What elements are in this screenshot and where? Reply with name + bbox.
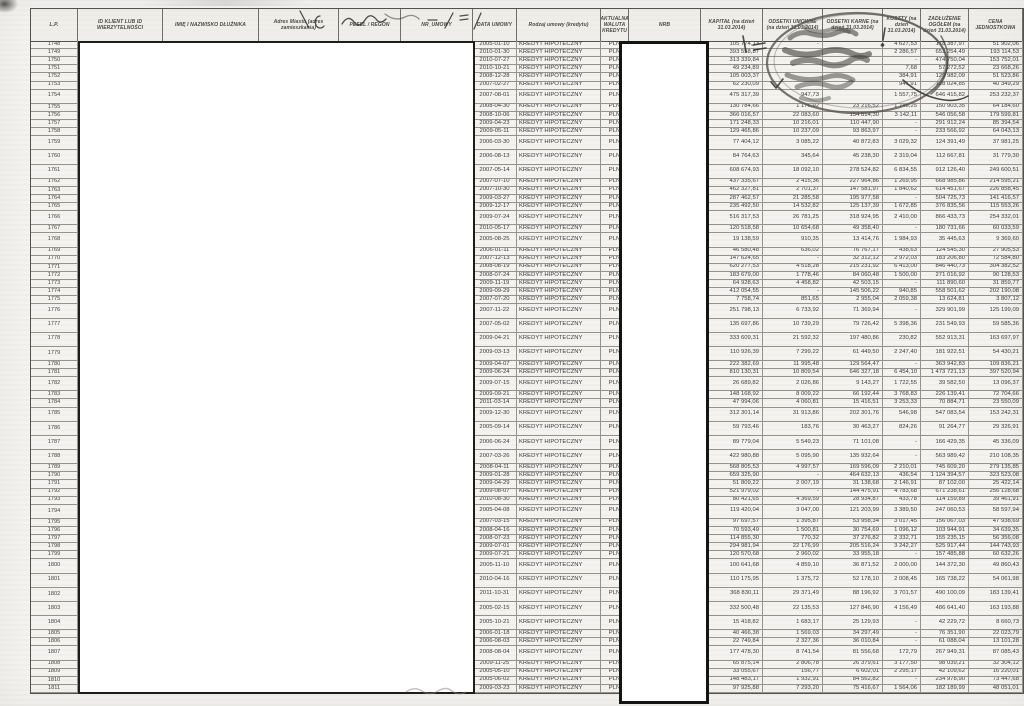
- cell-koszty: 546,98: [883, 408, 921, 421]
- cell-zadluzenie_ogolem: 653 254,49: [921, 49, 969, 56]
- cell-odsetki_umowne: 11 995,48: [763, 361, 823, 368]
- cell-lp: 1795: [31, 519, 78, 526]
- cell-cena_jednostkowa: 60 632,26: [969, 551, 1023, 558]
- cell-data_umowy: 2006-06-24: [473, 436, 517, 449]
- column-header-nr-umowy: NR_UMOWY: [401, 9, 473, 41]
- cell-zadluzenie_ogolem: 490 100,09: [921, 588, 969, 601]
- cell-koszty: 230,82: [883, 333, 921, 346]
- cell-data_umowy: 2005-11-10: [473, 559, 517, 572]
- cell-lp: 1772: [31, 272, 78, 279]
- cell-odsetki_umowne: 4 458,82: [763, 280, 823, 287]
- cell-zadluzenie_ogolem: 291 912,24: [921, 120, 969, 127]
- cell-zadluzenie_ogolem: 271 016,92: [921, 272, 969, 279]
- cell-koszty: 6 454,10: [883, 369, 921, 376]
- cell-lp: 1758: [31, 128, 78, 135]
- cell-koszty: -: [883, 195, 921, 202]
- cell-kapital: 659 325,90: [701, 472, 763, 479]
- cell-zadluzenie_ogolem: 912 126,40: [921, 165, 969, 178]
- cell-odsetki_umowne: 4 060,81: [763, 399, 823, 406]
- cell-cena_jednostkowa: 144 743,93: [969, 543, 1023, 550]
- cell-cena_jednostkowa: 90 128,53: [969, 272, 1023, 279]
- cell-odsetki_umowne: 10 216,01: [763, 120, 823, 127]
- cell-kapital: 33 055,67: [701, 669, 763, 676]
- cell-lp: 1765: [31, 203, 78, 210]
- cell-koszty: 3 029,32: [883, 136, 921, 149]
- cell-odsetki_karne: 129 564,47: [823, 361, 883, 368]
- cell-odsetki_umowne: 21 592,32: [763, 333, 823, 346]
- cell-odsetki_umowne: 3 047,00: [763, 505, 823, 518]
- cell-lp: 1802: [31, 588, 78, 601]
- column-header-adres: Adres Miasto (adres zamieszkania): [259, 9, 339, 41]
- cell-zadluzenie_ogolem: 111 890,60: [921, 280, 969, 287]
- cell-odsetki_umowne: -: [763, 288, 823, 295]
- cell-odsetki_umowne: 10 237,09: [763, 128, 823, 135]
- cell-zadluzenie_ogolem: 91 264,77: [921, 422, 969, 435]
- cell-rodzaj_umowy: KREDYT HIPOTECZNY: [517, 497, 601, 504]
- cell-odsetki_karne: [823, 90, 883, 103]
- redaction-box-identity: [78, 41, 475, 694]
- cell-cena_jednostkowa: 54 061,98: [969, 574, 1023, 587]
- cell-data_umowy: 2009-03-27: [473, 195, 517, 202]
- cell-lp: 1778: [31, 333, 78, 346]
- cell-odsetki_karne: 205 516,24: [823, 543, 883, 550]
- cell-cena_jednostkowa: 397 520,94: [969, 369, 1023, 376]
- cell-kapital: 620 277,53: [701, 264, 763, 271]
- cell-rodzaj_umowy: KREDYT HIPOTECZNY: [517, 65, 601, 72]
- cell-data_umowy: 2005-04-08: [473, 505, 517, 518]
- cell-koszty: 3 177,50: [883, 661, 921, 668]
- cell-kapital: 171 248,33: [701, 120, 763, 127]
- cell-rodzaj_umowy: KREDYT HIPOTECZNY: [517, 179, 601, 186]
- cell-lp: 1760: [31, 150, 78, 163]
- cell-koszty: 6 834,55: [883, 165, 921, 178]
- cell-cena_jednostkowa: 179 599,81: [969, 112, 1023, 119]
- cell-lp: 1779: [31, 347, 78, 360]
- cell-data_umowy: 2009-07-01: [473, 543, 517, 550]
- cell-rodzaj_umowy: KREDYT HIPOTECZNY: [517, 280, 601, 287]
- cell-lp: 1806: [31, 638, 78, 645]
- cell-lp: 1785: [31, 408, 78, 421]
- cell-zadluzenie_ogolem: 39 582,50: [921, 377, 969, 390]
- cell-kapital: 313 339,84: [701, 57, 763, 64]
- cell-odsetki_karne: 53 958,34: [823, 519, 883, 526]
- cell-zadluzenie_ogolem: 181 922,51: [921, 347, 969, 360]
- cell-koszty: -: [883, 436, 921, 449]
- cell-zadluzenie_ogolem: 267 949,31: [921, 646, 969, 659]
- cell-koszty: -: [883, 128, 921, 135]
- cell-rodzaj_umowy: KREDYT HIPOTECZNY: [517, 527, 601, 534]
- cell-odsetki_karne: 30 754,69: [823, 527, 883, 534]
- cell-odsetki_umowne: 910,35: [763, 233, 823, 246]
- cell-zadluzenie_ogolem: 124 545,30: [921, 248, 969, 255]
- cell-zadluzenie_ogolem: 144 372,30: [921, 559, 969, 572]
- cell-lp: 1769: [31, 248, 78, 255]
- cell-data_umowy: 2009-03-13: [473, 347, 517, 360]
- cell-kapital: 412 054,55: [701, 288, 763, 295]
- cell-rodzaj_umowy: KREDYT HIPOTECZNY: [517, 472, 601, 479]
- cell-zadluzenie_ogolem: 1 124 394,57: [921, 472, 969, 479]
- cell-koszty: 1 500,00: [883, 272, 921, 279]
- cell-kapital: 120 518,58: [701, 225, 763, 232]
- cell-odsetki_karne: 215 231,92: [823, 264, 883, 271]
- cell-koszty: -: [883, 280, 921, 287]
- cell-koszty: 4 627,53: [883, 41, 921, 48]
- cell-rodzaj_umowy: KREDYT HIPOTECZNY: [517, 150, 601, 163]
- cell-odsetki_karne: 93 863,97: [823, 128, 883, 135]
- cell-odsetki_umowne: 1 778,46: [763, 272, 823, 279]
- cell-rodzaj_umowy: KREDYT HIPOTECZNY: [517, 304, 601, 317]
- cell-lp: 1750: [31, 57, 78, 64]
- cell-odsetki_karne: 81 556,68: [823, 646, 883, 659]
- cell-rodzaj_umowy: KREDYT HIPOTECZNY: [517, 288, 601, 295]
- column-header-imie-nazwisko: IMIĘ I NAZWISKO DŁUŻNIKA: [163, 9, 259, 41]
- cell-odsetki_umowne: 1 932,91: [763, 677, 823, 684]
- cell-odsetki_karne: 61 449,50: [823, 347, 883, 360]
- cell-zadluzenie_ogolem: 866 433,73: [921, 211, 969, 224]
- cell-kapital: 110 175,95: [701, 574, 763, 587]
- cell-koszty: 1 672,85: [883, 203, 921, 210]
- cell-odsetki_umowne: [763, 65, 823, 72]
- cell-odsetki_umowne: 14 532,82: [763, 203, 823, 210]
- cell-kapital: 608 674,93: [701, 165, 763, 178]
- cell-zadluzenie_ogolem: 129 982,09: [921, 73, 969, 80]
- cell-zadluzenie_ogolem: 155 235,15: [921, 535, 969, 542]
- cell-data_umowy: 2009-11-25: [473, 661, 517, 668]
- cell-odsetki_umowne: -: [763, 472, 823, 479]
- cell-odsetki_umowne: 22 176,99: [763, 543, 823, 550]
- cell-data_umowy: 2007-11-22: [473, 304, 517, 317]
- cell-kapital: 47 994,06: [701, 399, 763, 406]
- cell-rodzaj_umowy: KREDYT HIPOTECZNY: [517, 256, 601, 263]
- cell-cena_jednostkowa: 64 184,60: [969, 104, 1023, 111]
- cell-koszty: 438,63: [883, 248, 921, 255]
- cell-zadluzenie_ogolem: 182 189,99: [921, 685, 969, 692]
- cell-rodzaj_umowy: KREDYT HIPOTECZNY: [517, 638, 601, 645]
- cell-zadluzenie_ogolem: 614 451,67: [921, 187, 969, 194]
- cell-koszty: 3 142,11: [883, 112, 921, 119]
- scan-corner-smudge: [0, 0, 18, 13]
- cell-odsetki_karne: 127 846,90: [823, 602, 883, 615]
- cell-koszty: -: [883, 616, 921, 629]
- cell-kapital: 119 420,04: [701, 505, 763, 518]
- cell-koszty: 2 247,40: [883, 347, 921, 360]
- cell-odsetki_umowne: 10 809,54: [763, 369, 823, 376]
- cell-odsetki_umowne: 7 299,22: [763, 347, 823, 360]
- cell-data_umowy: 2009-04-29: [473, 480, 517, 487]
- cell-lp: 1801: [31, 574, 78, 587]
- cell-rodzaj_umowy: KREDYT HIPOTECZNY: [517, 422, 601, 435]
- cell-odsetki_umowne: 8 741,54: [763, 646, 823, 659]
- cell-zadluzenie_ogolem: 668 985,86: [921, 179, 969, 186]
- cell-odsetki_karne: 76 767,17: [823, 248, 883, 255]
- cell-koszty: 1 840,62: [883, 187, 921, 194]
- cell-lp: 1782: [31, 377, 78, 390]
- cell-koszty: -: [883, 361, 921, 368]
- cell-odsetki_karne: [823, 41, 883, 48]
- cell-kapital: 97 697,57: [701, 519, 763, 526]
- cell-odsetki_umowne: 2 806,78: [763, 661, 823, 668]
- cell-data_umowy: 2011-03-14: [473, 399, 517, 406]
- cell-data_umowy: 2009-05-11: [473, 128, 517, 135]
- column-header-id-klient: ID KLIENT LUB ID WIERZYTELNOŚCI: [78, 9, 163, 41]
- cell-odsetki_karne: 195 977,58: [823, 195, 883, 202]
- cell-data_umowy: 2007-10-30: [473, 187, 517, 194]
- cell-cena_jednostkowa: 56 356,08: [969, 535, 1023, 542]
- cell-odsetki_umowne: 21 285,58: [763, 195, 823, 202]
- cell-odsetki_karne: 169 596,09: [823, 464, 883, 471]
- cell-kapital: 183 679,00: [701, 272, 763, 279]
- cell-lp: 1797: [31, 535, 78, 542]
- cell-data_umowy: 2008-04-16: [473, 527, 517, 534]
- cell-data_umowy: 2007-07-10: [473, 179, 517, 186]
- cell-cena_jednostkowa: 8 660,73: [969, 616, 1023, 629]
- cell-lp: 1759: [31, 136, 78, 149]
- cell-data_umowy: 2009-09-21: [473, 391, 517, 398]
- cell-rodzaj_umowy: KREDYT HIPOTECZNY: [517, 464, 601, 471]
- cell-rodzaj_umowy: KREDYT HIPOTECZNY: [517, 120, 601, 127]
- cell-rodzaj_umowy: KREDYT HIPOTECZNY: [517, 57, 601, 64]
- cell-zadluzenie_ogolem: 98 039,21: [921, 661, 969, 668]
- cell-koszty: 2 972,03: [883, 256, 921, 263]
- cell-koszty: 384,91: [883, 73, 921, 80]
- cell-kapital: 475 317,39: [701, 90, 763, 103]
- cell-cena_jednostkowa: 73 447,68: [969, 677, 1023, 684]
- cell-koszty: -: [883, 304, 921, 317]
- column-header-zadluzenie: ZADŁUŻENIE OGÓŁEM (na dzień 31.03.2014): [921, 9, 969, 41]
- cell-data_umowy: 2007-02-27: [473, 82, 517, 89]
- cell-data_umowy: 2009-04-07: [473, 361, 517, 368]
- cell-koszty: 436,54: [883, 472, 921, 479]
- cell-cena_jednostkowa: 9 369,60: [969, 233, 1023, 246]
- cell-odsetki_karne: 40 872,83: [823, 136, 883, 149]
- cell-odsetki_karne: 33 955,18: [823, 551, 883, 558]
- cell-kapital: 51 809,22: [701, 480, 763, 487]
- cell-odsetki_karne: 145 506,22: [823, 288, 883, 295]
- scanned-loan-table-page: L.P. ID KLIENT LUB ID WIERZYTELNOŚCI IMI…: [0, 0, 1024, 706]
- cell-odsetki_umowne: 10 739,29: [763, 319, 823, 332]
- cell-odsetki_umowne: 770,32: [763, 535, 823, 542]
- cell-kapital: 84 764,63: [701, 150, 763, 163]
- cell-data_umowy: 2006-08-03: [473, 638, 517, 645]
- cell-rodzaj_umowy: KREDYT HIPOTECZNY: [517, 391, 601, 398]
- cell-lp: 1780: [31, 361, 78, 368]
- cell-kapital: 147 624,65: [701, 256, 763, 263]
- cell-odsetki_karne: 71 369,94: [823, 304, 883, 317]
- cell-odsetki_umowne: 156,77: [763, 669, 823, 676]
- cell-odsetki_umowne: 183,76: [763, 422, 823, 435]
- cell-data_umowy: 2008-08-19: [473, 264, 517, 271]
- cell-zadluzenie_ogolem: 547 083,54: [921, 408, 969, 421]
- cell-data_umowy: 2010-08-30: [473, 497, 517, 504]
- cell-zadluzenie_ogolem: 846 440,73: [921, 264, 969, 271]
- cell-kapital: 222 382,69: [701, 361, 763, 368]
- cell-odsetki_karne: 135 932,64: [823, 450, 883, 463]
- cell-cena_jednostkowa: 51 902,06: [969, 41, 1023, 48]
- cell-odsetki_umowne: 26 781,25: [763, 211, 823, 224]
- cell-odsetki_karne: 32 312,12: [823, 256, 883, 263]
- cell-odsetki_umowne: 1 569,03: [763, 630, 823, 637]
- cell-rodzaj_umowy: KREDYT HIPOTECZNY: [517, 104, 601, 111]
- cell-rodzaj_umowy: KREDYT HIPOTECZNY: [517, 543, 601, 550]
- cell-data_umowy: 2010-01-30: [473, 49, 517, 56]
- cell-data_umowy: 2005-08-25: [473, 233, 517, 246]
- cell-data_umowy: 2009-07-21: [473, 551, 517, 558]
- cell-odsetki_karne: 34 297,49: [823, 630, 883, 637]
- cell-data_umowy: 2009-01-28: [473, 472, 517, 479]
- cell-kapital: 65 875,14: [701, 661, 763, 668]
- cell-kapital: 80 421,65: [701, 497, 763, 504]
- cell-lp: 1781: [31, 369, 78, 376]
- cell-koszty: 433,78: [883, 497, 921, 504]
- cell-lp: 1796: [31, 527, 78, 534]
- cell-koszty: 1 096,12: [883, 527, 921, 534]
- cell-odsetki_umowne: 8 009,22: [763, 391, 823, 398]
- cell-cena_jednostkowa: 40 349,29: [969, 82, 1023, 89]
- cell-kapital: 129 465,86: [701, 128, 763, 135]
- cell-koszty: 3 017,45: [883, 519, 921, 526]
- cell-zadluzenie_ogolem: 234 978,90: [921, 677, 969, 684]
- cell-cena_jednostkowa: 163 193,88: [969, 602, 1023, 615]
- cell-koszty: 824,26: [883, 422, 921, 435]
- cell-kapital: 521 979,02: [701, 489, 763, 496]
- cell-rodzaj_umowy: KREDYT HIPOTECZNY: [517, 211, 601, 224]
- cell-rodzaj_umowy: KREDYT HIPOTECZNY: [517, 661, 601, 668]
- cell-zadluzenie_ogolem: 61 088,04: [921, 638, 969, 645]
- cell-kapital: 89 779,04: [701, 436, 763, 449]
- cell-kapital: 105 774,13: [701, 41, 763, 48]
- cell-kapital: 568 805,53: [701, 464, 763, 471]
- cell-rodzaj_umowy: KREDYT HIPOTECZNY: [517, 233, 601, 246]
- cell-rodzaj_umowy: KREDYT HIPOTECZNY: [517, 90, 601, 103]
- cell-zadluzenie_ogolem: 183 206,80: [921, 256, 969, 263]
- cell-data_umowy: 2009-04-21: [473, 333, 517, 346]
- column-header-lp: L.P.: [31, 9, 78, 41]
- cell-zadluzenie_ogolem: 76 351,90: [921, 630, 969, 637]
- cell-odsetki_umowne: 1 375,72: [763, 574, 823, 587]
- redaction-box-nrb: [619, 41, 709, 704]
- cell-zadluzenie_ogolem: 150 903,35: [921, 104, 969, 111]
- cell-rodzaj_umowy: KREDYT HIPOTECZNY: [517, 296, 601, 303]
- cell-odsetki_umowne: [763, 49, 823, 56]
- cell-zadluzenie_ogolem: 103 944,91: [921, 527, 969, 534]
- cell-cena_jednostkowa: 31 779,30: [969, 150, 1023, 163]
- cell-zadluzenie_ogolem: 363 942,83: [921, 361, 969, 368]
- cell-odsetki_karne: 84 060,48: [823, 272, 883, 279]
- cell-cena_jednostkowa: 3 807,12: [969, 296, 1023, 303]
- cell-lp: 1793: [31, 497, 78, 504]
- cell-cena_jednostkowa: 54 430,21: [969, 347, 1023, 360]
- cell-odsetki_karne: 121 203,99: [823, 505, 883, 518]
- cell-zadluzenie_ogolem: 13 624,81: [921, 296, 969, 303]
- cell-data_umowy: 2007-03-26: [473, 450, 517, 463]
- cell-lp: 1766: [31, 211, 78, 224]
- cell-rodzaj_umowy: KREDYT HIPOTECZNY: [517, 685, 601, 692]
- cell-koszty: 940,85: [883, 288, 921, 295]
- cell-odsetki_karne: 227 964,86: [823, 179, 883, 186]
- cell-cena_jednostkowa: 141 416,57: [969, 195, 1023, 202]
- cell-data_umowy: 2006-01-11: [473, 248, 517, 255]
- cell-cena_jednostkowa: 183 139,41: [969, 588, 1023, 601]
- cell-koszty: -: [883, 638, 921, 645]
- cell-kapital: 46 580,48: [701, 248, 763, 255]
- cell-rodzaj_umowy: KREDYT HIPOTECZNY: [517, 505, 601, 518]
- cell-kapital: 810 130,31: [701, 369, 763, 376]
- cell-odsetki_karne: 2 955,04: [823, 296, 883, 303]
- cell-lp: 1790: [31, 472, 78, 479]
- cell-odsetki_umowne: 10 654,68: [763, 225, 823, 232]
- column-header-odsetki-umowne: ODSETKI UMOWNE (na dzień 31.03.2014): [763, 9, 823, 41]
- cell-odsetki_umowne: 1 176,92: [763, 104, 823, 111]
- cell-odsetki_karne: 84 562,82: [823, 677, 883, 684]
- cell-rodzaj_umowy: KREDYT HIPOTECZNY: [517, 112, 601, 119]
- cell-zadluzenie_ogolem: 226 139,41: [921, 391, 969, 398]
- cell-lp: 1810: [31, 677, 78, 684]
- cell-koszty: 5 398,36: [883, 319, 921, 332]
- cell-koszty: 172,79: [883, 646, 921, 659]
- cell-cena_jednostkowa: 22 023,79: [969, 630, 1023, 637]
- cell-data_umowy: 2009-07-15: [473, 377, 517, 390]
- cell-zadluzenie_ogolem: 376 835,56: [921, 203, 969, 210]
- cell-rodzaj_umowy: KREDYT HIPOTECZNY: [517, 136, 601, 149]
- cell-cena_jednostkowa: 210 108,35: [969, 450, 1023, 463]
- cell-zadluzenie_ogolem: 486 641,40: [921, 602, 969, 615]
- cell-zadluzenie_ogolem: 504 725,73: [921, 195, 969, 202]
- cell-data_umowy: 2009-06-24: [473, 369, 517, 376]
- cell-cena_jednostkowa: 253 232,37: [969, 90, 1023, 103]
- cell-zadluzenie_ogolem: 646 415,82: [921, 90, 969, 103]
- cell-odsetki_karne: [823, 73, 883, 80]
- cell-cena_jednostkowa: 16 220,01: [969, 669, 1023, 676]
- cell-rodzaj_umowy: KREDYT HIPOTECZNY: [517, 361, 601, 368]
- cell-cena_jednostkowa: 115 553,26: [969, 203, 1023, 210]
- cell-cena_jednostkowa: 202 190,08: [969, 288, 1023, 295]
- cell-lp: 1773: [31, 280, 78, 287]
- cell-lp: 1753: [31, 82, 78, 89]
- cell-cena_jednostkowa: 13 101,28: [969, 638, 1023, 645]
- cell-lp: 1754: [31, 90, 78, 103]
- cell-data_umowy: 2006-08-13: [473, 150, 517, 163]
- cell-koszty: 2 059,38: [883, 296, 921, 303]
- cell-zadluzenie_ogolem: 114 159,89: [921, 497, 969, 504]
- cell-zadluzenie_ogolem: 563 989,42: [921, 450, 969, 463]
- cell-odsetki_umowne: 851,65: [763, 296, 823, 303]
- cell-odsetki_umowne: 22 135,53: [763, 602, 823, 615]
- cell-cena_jednostkowa: 125 199,09: [969, 304, 1023, 317]
- cell-odsetki_umowne: 18 092,10: [763, 165, 823, 178]
- cell-koszty: 1 557,75: [883, 90, 921, 103]
- cell-koszty: 2 000,00: [883, 559, 921, 572]
- cell-cena_jednostkowa: 48 051,01: [969, 685, 1023, 692]
- cell-cena_jednostkowa: 27 905,53: [969, 248, 1023, 255]
- cell-kapital: 105 003,37: [701, 73, 763, 80]
- cell-cena_jednostkowa: 279 135,85: [969, 464, 1023, 471]
- cell-odsetki_umowne: 1 395,87: [763, 519, 823, 526]
- cell-odsetki_umowne: 22 083,60: [763, 112, 823, 119]
- cell-data_umowy: 2009-11-19: [473, 280, 517, 287]
- cell-lp: 1763: [31, 187, 78, 194]
- cell-odsetki_karne: 28 934,87: [823, 497, 883, 504]
- cell-data_umowy: 2009-09-29: [473, 288, 517, 295]
- cell-data_umowy: 2007-05-14: [473, 165, 517, 178]
- cell-koszty: 2 295,17: [883, 669, 921, 676]
- cell-cena_jednostkowa: 60 033,59: [969, 225, 1023, 232]
- cell-rodzaj_umowy: KREDYT HIPOTECZNY: [517, 630, 601, 637]
- cell-cena_jednostkowa: 72 584,80: [969, 256, 1023, 263]
- cell-odsetki_karne: 88 196,92: [823, 588, 883, 601]
- cell-kapital: 70 593,49: [701, 527, 763, 534]
- cell-rodzaj_umowy: KREDYT HIPOTECZNY: [517, 535, 601, 542]
- cell-data_umowy: 2008-04-30: [473, 104, 517, 111]
